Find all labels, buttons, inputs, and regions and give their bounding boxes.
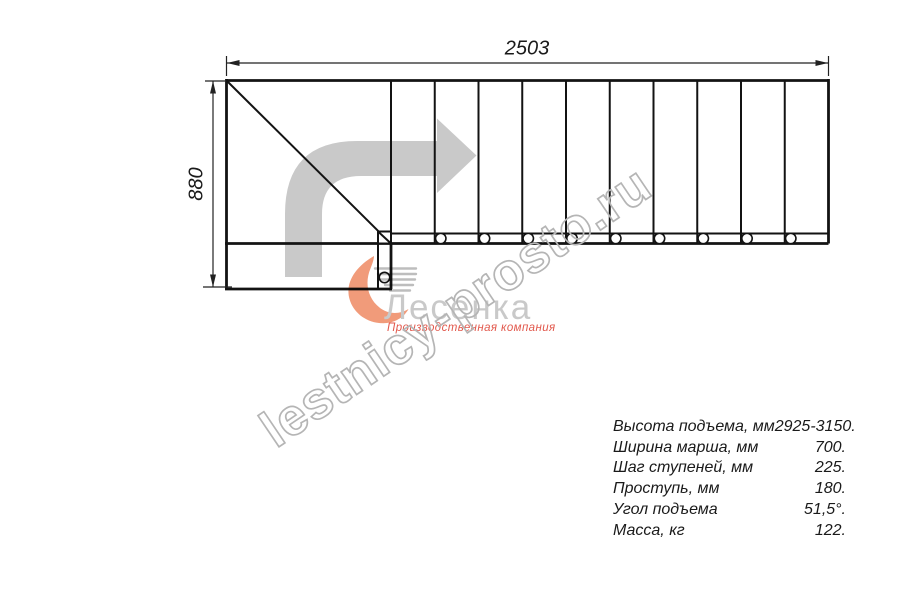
logo-tagline-text: Производственная компания	[387, 322, 556, 334]
spec-row-step-pitch: Шаг ступеней, мм 225.	[613, 458, 846, 479]
spec-row-march-width: Ширина марша, мм 700.	[613, 438, 846, 459]
spec-row-angle: Угол подъема 51,5°.	[613, 500, 846, 521]
spec-row-height: Высота подъема, мм 2925-3150.	[613, 417, 846, 438]
logo-brand-text: Лесенка	[384, 291, 532, 324]
spec-label: Проступь, мм	[613, 479, 719, 500]
spec-value: 180.	[815, 479, 846, 500]
spec-row-tread: Проступь, мм 180.	[613, 479, 846, 500]
spec-label: Угол подъема	[613, 500, 718, 521]
spec-label: Высота подъема, мм	[613, 417, 775, 438]
spec-value: 2925-3150.	[775, 417, 856, 438]
spec-row-mass: Масса, кг 122.	[613, 521, 846, 542]
specs-table: Высота подъема, мм 2925-3150. Ширина мар…	[613, 417, 846, 541]
spec-label: Масса, кг	[613, 521, 685, 542]
spec-value: 122.	[815, 521, 846, 542]
spec-label: Ширина марша, мм	[613, 438, 758, 459]
spec-value: 51,5°.	[804, 500, 846, 521]
spec-label: Шаг ступеней, мм	[613, 458, 753, 479]
drawing-canvas: 2503 880 Лесенка Производственная компан…	[0, 0, 900, 600]
spec-value: 700.	[815, 438, 846, 459]
spec-value: 225.	[815, 458, 846, 479]
